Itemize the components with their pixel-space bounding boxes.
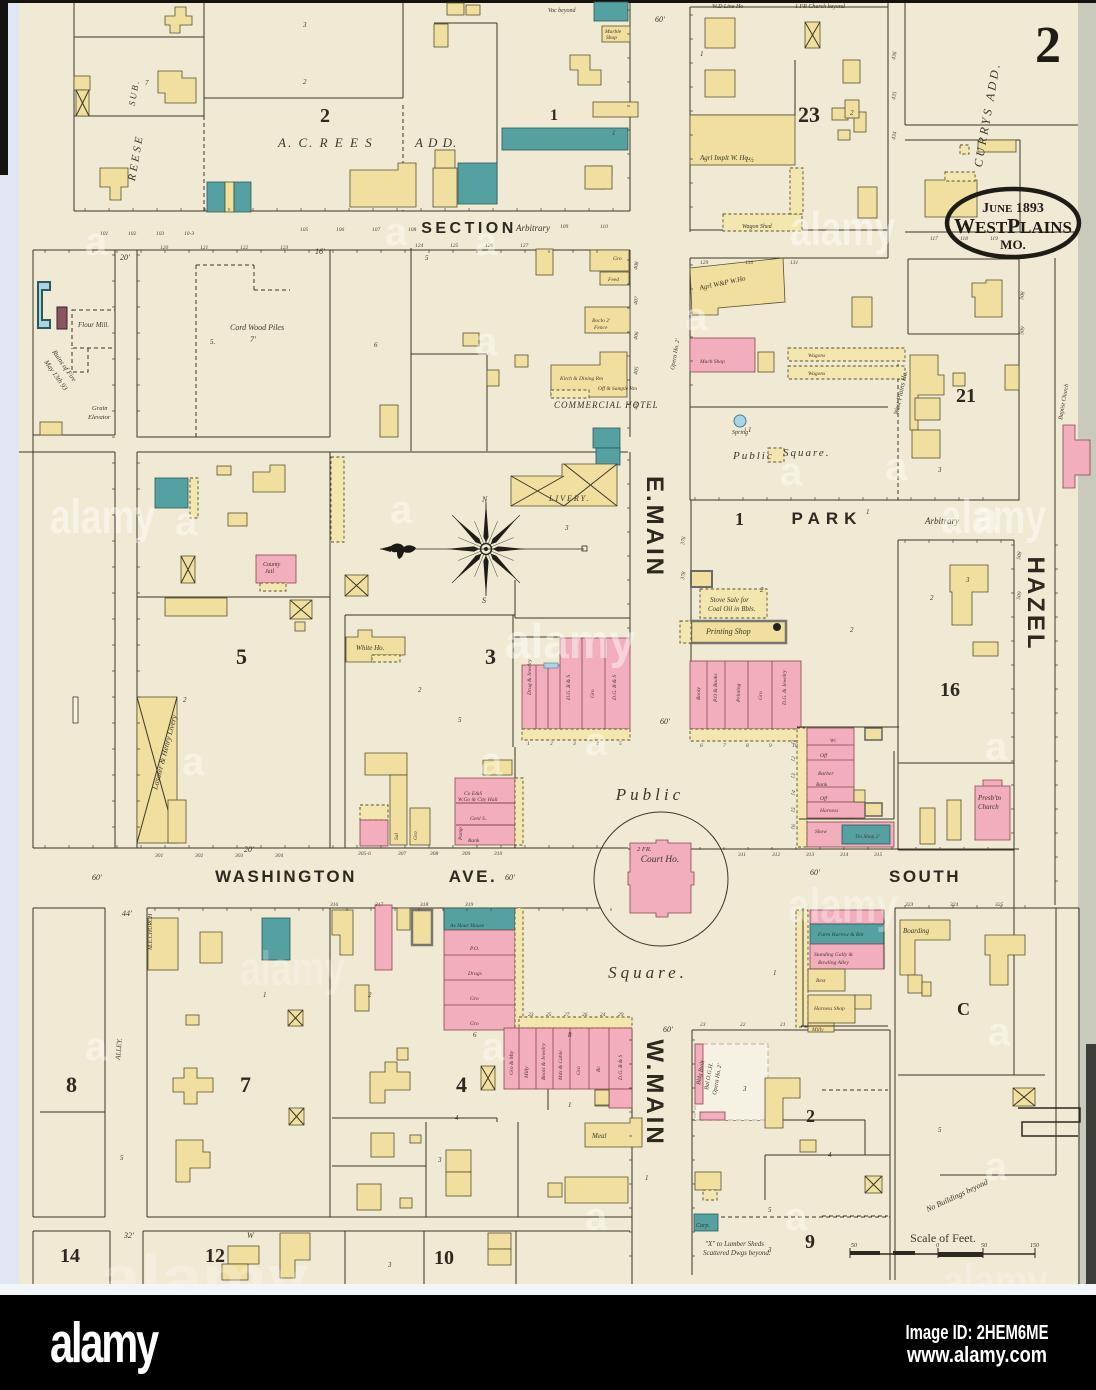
svg-text:108: 108 xyxy=(408,227,417,233)
svg-text:1: 1 xyxy=(527,741,530,747)
svg-text:SOUTH: SOUTH xyxy=(889,867,961,886)
svg-text:W.Go & City Hall: W.Go & City Hall xyxy=(458,797,498,803)
svg-text:C: C xyxy=(957,999,970,1019)
svg-text:Standing Gally &: Standing Gally & xyxy=(814,952,854,958)
svg-text:Boarding: Boarding xyxy=(903,927,930,935)
svg-text:2: 2 xyxy=(1035,17,1061,74)
svg-text:a: a xyxy=(985,725,1008,769)
svg-text:a: a xyxy=(975,495,998,539)
svg-text:3: 3 xyxy=(937,466,942,474)
svg-text:60': 60' xyxy=(810,868,820,877)
svg-text:32': 32' xyxy=(123,1231,134,1240)
svg-text:Gro: Gro xyxy=(470,1021,479,1027)
svg-text:2: 2 xyxy=(550,741,553,747)
svg-text:2: 2 xyxy=(418,686,422,694)
svg-text:D.G. & Jewelry: D.G. & Jewelry xyxy=(782,670,788,706)
svg-text:Gro & Mty: Gro & Mty xyxy=(509,1050,515,1075)
svg-text:a: a xyxy=(175,500,198,544)
svg-text:Milly: Milly xyxy=(524,1066,530,1079)
svg-text:324: 324 xyxy=(949,901,959,908)
svg-text:5: 5 xyxy=(768,1206,772,1214)
svg-text:E.MAIN: E.MAIN xyxy=(641,476,668,578)
svg-text:3: 3 xyxy=(302,21,307,29)
svg-text:MO.: MO. xyxy=(1000,237,1026,252)
svg-text:10-3: 10-3 xyxy=(184,231,194,237)
svg-text:a: a xyxy=(182,740,205,784)
svg-text:407: 407 xyxy=(632,296,640,306)
svg-text:Tin Shop 2': Tin Shop 2' xyxy=(855,834,881,840)
svg-text:125: 125 xyxy=(450,243,459,249)
svg-text:a: a xyxy=(885,445,908,489)
svg-text:1 FR Church beyond: 1 FR Church beyond xyxy=(795,4,846,10)
svg-text:130: 130 xyxy=(745,260,754,266)
svg-text:Mach Shop: Mach Shop xyxy=(699,359,725,365)
svg-text:2 FR.: 2 FR. xyxy=(637,846,652,853)
svg-text:Arbitrary: Arbitrary xyxy=(515,223,550,233)
svg-text:5: 5 xyxy=(619,741,622,747)
svg-text:23: 23 xyxy=(798,102,820,127)
svg-text:1: 1 xyxy=(645,1174,649,1182)
svg-text:7: 7 xyxy=(723,743,726,749)
svg-text:1: 1 xyxy=(612,129,616,137)
svg-text:a: a xyxy=(685,295,708,339)
svg-text:8: 8 xyxy=(746,743,749,749)
svg-text:50: 50 xyxy=(851,1243,857,1249)
svg-text:Wagons: Wagons xyxy=(808,353,825,359)
svg-text:Milly: Milly xyxy=(811,1027,824,1033)
svg-text:3: 3 xyxy=(387,1261,392,1269)
svg-text:313: 313 xyxy=(805,852,815,858)
svg-text:27: 27 xyxy=(564,1012,570,1018)
svg-text:21: 21 xyxy=(956,385,976,407)
svg-text:D.G. B & S: D.G. B & S xyxy=(618,1055,624,1081)
svg-text:Harness Shop: Harness Shop xyxy=(813,1006,845,1012)
svg-text:311: 311 xyxy=(737,852,746,858)
svg-text:3: 3 xyxy=(437,1156,442,1164)
svg-text:1½: 1½ xyxy=(745,156,755,164)
svg-text:6: 6 xyxy=(374,341,378,349)
svg-text:105: 105 xyxy=(300,227,309,233)
svg-text:319: 319 xyxy=(464,902,474,908)
svg-text:304: 304 xyxy=(274,852,284,859)
svg-text:Stove Sale for: Stove Sale for xyxy=(710,596,749,604)
svg-text:a: a xyxy=(785,1195,808,1239)
svg-text:Ax Hour House: Ax Hour House xyxy=(449,923,485,929)
svg-text:23: 23 xyxy=(700,1022,706,1028)
svg-text:a: a xyxy=(475,320,498,364)
svg-text:Jail: Jail xyxy=(265,569,274,575)
svg-text:127: 127 xyxy=(520,243,529,249)
svg-text:a: a xyxy=(85,220,108,264)
svg-text:6: 6 xyxy=(473,1031,477,1039)
svg-text:Flour Mill.: Flour Mill. xyxy=(77,321,109,329)
svg-text:50: 50 xyxy=(981,1243,987,1249)
svg-text:Wc: Wc xyxy=(830,739,837,744)
svg-text:Pump: Pump xyxy=(458,827,464,841)
svg-text:D.G. B & S: D.G. B & S xyxy=(566,675,572,701)
svg-text:8: 8 xyxy=(568,1031,572,1039)
svg-text:323: 323 xyxy=(904,902,914,908)
svg-text:Show: Show xyxy=(815,829,827,835)
svg-text:117: 117 xyxy=(930,236,938,242)
svg-text:a: a xyxy=(475,220,498,264)
svg-text:8: 8 xyxy=(66,1072,77,1097)
svg-text:PARK: PARK xyxy=(792,509,863,528)
svg-text:2: 2 xyxy=(850,109,854,117)
svg-text:4: 4 xyxy=(455,1114,459,1122)
svg-text:103: 103 xyxy=(156,231,165,237)
svg-text:10: 10 xyxy=(434,1247,454,1269)
svg-text:131: 131 xyxy=(790,260,799,266)
svg-text:a: a xyxy=(482,1025,505,1069)
svg-text:3: 3 xyxy=(965,576,970,584)
svg-text:Bank: Bank xyxy=(816,782,828,788)
svg-text:Gro: Gro xyxy=(576,1066,582,1075)
svg-text:S: S xyxy=(482,596,486,605)
svg-text:16: 16 xyxy=(940,679,960,701)
svg-text:M.E.CHURCH: M.E.CHURCH xyxy=(148,913,154,951)
svg-text:308: 308 xyxy=(429,851,439,857)
svg-text:3: 3 xyxy=(572,741,576,747)
svg-text:1: 1 xyxy=(866,508,870,516)
svg-text:2: 2 xyxy=(183,696,187,704)
svg-text:0: 0 xyxy=(936,1243,939,1249)
svg-text:436: 436 xyxy=(890,51,898,61)
svg-text:406: 406 xyxy=(632,331,640,341)
svg-text:A. C. R E E S: A. C. R E E S xyxy=(277,135,374,150)
svg-text:W.MAIN: W.MAIN xyxy=(641,1039,668,1146)
svg-text:124: 124 xyxy=(415,242,424,249)
svg-text:22: 22 xyxy=(740,1022,746,1028)
svg-text:Kitch & Dining Rm: Kitch & Dining Rm xyxy=(559,376,603,382)
svg-text:102: 102 xyxy=(128,231,137,237)
svg-text:16': 16' xyxy=(315,247,325,256)
svg-text:Gro: Gro xyxy=(413,831,419,840)
svg-text:302: 302 xyxy=(194,853,204,859)
svg-text:a: a xyxy=(385,210,408,254)
svg-text:21: 21 xyxy=(780,1022,786,1028)
svg-text:Agrl Implt W. Ho.: Agrl Implt W. Ho. xyxy=(699,154,750,162)
svg-text:Off & Sample Rm: Off & Sample Rm xyxy=(598,385,637,392)
svg-text:a: a xyxy=(780,450,803,494)
svg-text:26: 26 xyxy=(582,1012,588,1018)
svg-text:29: 29 xyxy=(618,1012,624,1018)
svg-text:alamy: alamy xyxy=(50,491,155,544)
svg-text:Mds & Cable: Mds & Cable xyxy=(558,1050,564,1081)
svg-text:60': 60' xyxy=(655,15,665,24)
svg-text:312: 312 xyxy=(771,852,781,858)
svg-text:2: 2 xyxy=(806,1106,815,1126)
svg-text:303: 303 xyxy=(234,853,244,859)
svg-text:HAZEL: HAZEL xyxy=(1022,557,1049,652)
svg-text:119: 119 xyxy=(990,236,998,242)
svg-text:2: 2 xyxy=(368,991,372,999)
svg-text:5: 5 xyxy=(458,716,462,724)
svg-text:Fence: Fence xyxy=(593,325,608,331)
svg-text:A D D.: A D D. xyxy=(414,135,457,150)
svg-text:7': 7' xyxy=(250,335,256,344)
svg-text:Harness: Harness xyxy=(819,808,838,814)
svg-text:107: 107 xyxy=(372,227,381,233)
svg-text:Gro: Gro xyxy=(470,996,479,1002)
svg-text:alamy: alamy xyxy=(50,1311,159,1375)
svg-text:1: 1 xyxy=(735,509,744,529)
svg-text:Presb'tn: Presb'tn xyxy=(977,794,1002,802)
svg-text:Square.: Square. xyxy=(608,963,688,982)
svg-text:WESTPLAINS: WESTPLAINS xyxy=(954,214,1072,238)
svg-text:122: 122 xyxy=(240,245,249,251)
svg-text:60': 60' xyxy=(660,717,670,726)
svg-text:a: a xyxy=(585,1195,608,1239)
svg-text:408: 408 xyxy=(632,261,640,271)
svg-text:a: a xyxy=(390,488,413,532)
svg-text:Cord Wood Piles: Cord Wood Piles xyxy=(230,323,284,332)
svg-text:44': 44' xyxy=(122,909,132,918)
svg-text:309: 309 xyxy=(461,851,471,857)
svg-text:4: 4 xyxy=(828,1151,832,1159)
svg-text:Wagon Shed: Wagon Shed xyxy=(742,224,773,230)
svg-text:7: 7 xyxy=(145,79,149,87)
svg-text:150: 150 xyxy=(1030,1243,1039,1249)
svg-text:SECTION: SECTION xyxy=(421,220,517,237)
svg-text:Scattered Dwgs beyond.: Scattered Dwgs beyond. xyxy=(703,1249,771,1257)
svg-text:White Ho.: White Ho. xyxy=(356,644,385,652)
svg-text:434: 434 xyxy=(890,131,898,141)
svg-text:24: 24 xyxy=(600,1011,606,1018)
svg-text:23: 23 xyxy=(528,1012,534,1018)
svg-text:20': 20' xyxy=(244,845,254,854)
svg-text:9: 9 xyxy=(769,743,772,749)
svg-text:404: 404 xyxy=(632,401,640,411)
svg-text:4: 4 xyxy=(456,1072,467,1097)
svg-text:5: 5 xyxy=(938,1126,942,1134)
svg-text:Bowling Alley: Bowling Alley xyxy=(818,960,849,966)
svg-text:Gro: Gro xyxy=(613,256,622,262)
svg-text:25: 25 xyxy=(546,1012,552,1018)
svg-text:Rest: Rest xyxy=(815,978,826,984)
svg-text:305-6: 305-6 xyxy=(357,851,371,857)
svg-text:20': 20' xyxy=(120,253,130,262)
svg-text:316: 316 xyxy=(329,902,339,908)
svg-text:Printing: Printing xyxy=(736,683,742,703)
svg-text:Court Ho.: Court Ho. xyxy=(641,855,680,865)
svg-text:307: 307 xyxy=(397,851,407,857)
svg-text:P.O & Books: P.O & Books xyxy=(713,674,719,703)
svg-text:3: 3 xyxy=(767,1246,772,1254)
svg-text:106: 106 xyxy=(336,227,345,233)
svg-text:Public: Public xyxy=(732,450,774,462)
svg-text:325: 325 xyxy=(994,902,1004,908)
svg-text:County: County xyxy=(263,562,281,568)
svg-text:60': 60' xyxy=(663,1025,673,1034)
svg-text:435: 435 xyxy=(890,91,898,101)
svg-text:Public: Public xyxy=(615,785,684,804)
svg-text:Booty: Booty xyxy=(696,687,702,700)
svg-text:1: 1 xyxy=(568,1101,572,1109)
svg-text:5: 5 xyxy=(425,254,429,262)
svg-text:a: a xyxy=(988,1010,1011,1054)
svg-text:Grain: Grain xyxy=(92,405,108,412)
svg-text:120: 120 xyxy=(160,245,169,251)
svg-text:Image ID: 2HEM6ME: Image ID: 2HEM6ME xyxy=(906,1322,1049,1344)
svg-text:317: 317 xyxy=(374,902,384,908)
svg-text:60': 60' xyxy=(505,873,515,882)
svg-text:D.G. B & S: D.G. B & S xyxy=(612,675,618,701)
svg-text:AVE.: AVE. xyxy=(449,867,497,886)
svg-text:7: 7 xyxy=(240,1072,251,1097)
svg-text:a: a xyxy=(480,740,503,784)
svg-text:110: 110 xyxy=(600,224,608,230)
svg-text:2: 2 xyxy=(850,626,854,634)
svg-text:2: 2 xyxy=(760,586,764,594)
svg-text:315: 315 xyxy=(873,852,883,858)
svg-text:Gro: Gro xyxy=(758,691,764,700)
svg-text:2: 2 xyxy=(320,105,330,127)
svg-text:405: 405 xyxy=(632,366,640,376)
svg-text:WASHINGTON: WASHINGTON xyxy=(215,867,357,886)
svg-text:14: 14 xyxy=(60,1245,80,1267)
svg-text:118: 118 xyxy=(960,236,968,242)
svg-text:alamy: alamy xyxy=(790,203,895,256)
svg-text:Roclo 2': Roclo 2' xyxy=(591,318,611,324)
svg-text:"X" to Lumber Sheds: "X" to Lumber Sheds xyxy=(705,1240,764,1248)
svg-text:129: 129 xyxy=(700,260,709,266)
svg-text:5: 5 xyxy=(236,644,247,669)
svg-text:3: 3 xyxy=(742,1085,747,1093)
svg-text:Genl S.: Genl S. xyxy=(470,816,486,822)
svg-text:5: 5 xyxy=(120,1154,124,1162)
svg-text:121: 121 xyxy=(200,245,209,251)
svg-text:Gro: Gro xyxy=(590,689,596,698)
svg-text:310: 310 xyxy=(493,851,503,857)
svg-text:5.: 5. xyxy=(210,338,216,346)
svg-text:Boots & Jewelry: Boots & Jewelry xyxy=(541,1043,547,1080)
svg-text:Carp.: Carp. xyxy=(696,1223,710,1229)
svg-text:Wagons: Wagons xyxy=(808,371,825,377)
svg-text:Barber: Barber xyxy=(818,771,834,777)
svg-text:COMMERCIAL HOTEL: COMMERCIAL HOTEL xyxy=(554,400,659,410)
svg-text:LIVERY.: LIVERY. xyxy=(548,494,590,503)
svg-text:1: 1 xyxy=(700,50,704,58)
svg-text:2: 2 xyxy=(930,594,934,602)
svg-text:301: 301 xyxy=(154,853,164,859)
svg-text:alamy: alamy xyxy=(505,616,635,669)
svg-text:6: 6 xyxy=(700,743,703,749)
svg-text:3: 3 xyxy=(564,524,569,532)
svg-text:a: a xyxy=(585,720,608,764)
svg-text:Vac beyond: Vac beyond xyxy=(548,8,576,14)
svg-text:1: 1 xyxy=(748,426,752,434)
svg-text:alamy: alamy xyxy=(788,880,898,933)
svg-text:Elevator: Elevator xyxy=(87,414,111,421)
svg-text:www.alamy.com: www.alamy.com xyxy=(906,1342,1047,1367)
svg-text:a: a xyxy=(85,1025,108,1069)
svg-text:123: 123 xyxy=(280,245,289,251)
svg-text:1: 1 xyxy=(550,107,558,124)
svg-text:2: 2 xyxy=(303,78,307,86)
svg-text:318: 318 xyxy=(419,902,429,908)
svg-text:1: 1 xyxy=(744,428,747,433)
svg-text:Coal Oil in Bbls.: Coal Oil in Bbls. xyxy=(708,605,756,613)
svg-text:Meal: Meal xyxy=(591,1132,606,1140)
svg-text:1: 1 xyxy=(773,969,777,977)
svg-text:Feed: Feed xyxy=(607,277,619,283)
svg-text:Sal: Sal xyxy=(394,833,400,841)
svg-text:N: N xyxy=(481,495,488,504)
svg-text:alamy: alamy xyxy=(240,943,345,996)
svg-text:W.D Line Ho: W.D Line Ho xyxy=(712,4,743,10)
svg-text:P.O.: P.O. xyxy=(469,946,479,952)
svg-text:60': 60' xyxy=(92,873,102,882)
svg-text:Scale of Feet.: Scale of Feet. xyxy=(910,1231,976,1245)
svg-text:Rc: Rc xyxy=(596,1066,602,1073)
svg-text:Church: Church xyxy=(978,803,999,811)
svg-text:Printing Shop: Printing Shop xyxy=(705,627,751,636)
svg-text:Bank: Bank xyxy=(468,838,480,844)
svg-text:314: 314 xyxy=(839,851,849,858)
svg-text:109: 109 xyxy=(560,224,569,230)
svg-text:Drugs: Drugs xyxy=(467,971,482,977)
svg-text:Shop: Shop xyxy=(606,35,617,41)
svg-text:a: a xyxy=(985,1145,1008,1189)
svg-text:3: 3 xyxy=(485,644,496,669)
